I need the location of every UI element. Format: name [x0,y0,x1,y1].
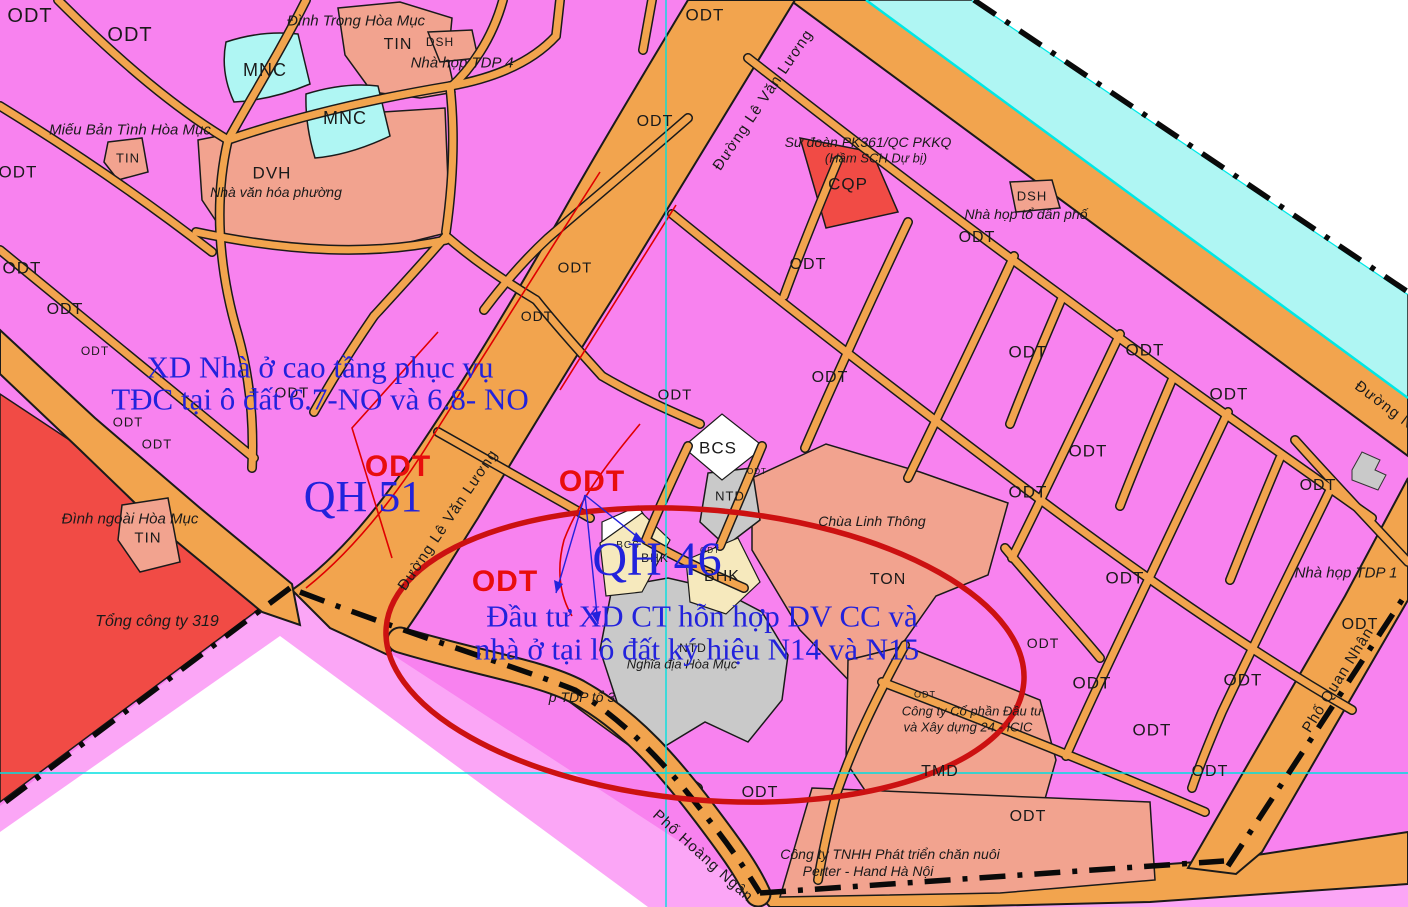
map-label: Đình ngoài Hòa Mục [62,512,199,527]
map-label: DVH [253,165,292,182]
map-label: ODT [7,6,52,26]
map-label: ODT [1224,672,1263,689]
map-label: ODT [142,438,172,451]
map-label: TIN [116,152,140,165]
map-label: NTD [715,490,745,503]
map-label: Nhà họp TDP 1 [1295,566,1398,581]
map-label: Công ty TNHH Phát triển chăn nuôi [780,847,999,861]
map-label: ODT [1300,478,1337,494]
map-label: ODT [1027,636,1060,650]
map-label: Tổng công ty 319 [95,614,219,630]
map-label: ODT [1106,570,1145,587]
map-label: ODT [1073,675,1112,692]
map-label: ODT [1126,342,1165,359]
map-label: BCS [699,440,737,457]
map-label: ODT [1009,344,1048,361]
map-label: DSH [1017,190,1047,203]
map-label: ODT [107,25,152,45]
map-label: MNC [243,61,287,79]
map-label: ODT [3,260,42,277]
map-canvas[interactable]: ODTODTODTODTODTODTODTODTODTODTODTODTODTO… [0,0,1408,907]
map-label: ODT [558,261,593,276]
map-label: CQP [828,176,868,193]
map-label: Perter - Hand Hà Nội [803,864,934,878]
map-label: Nhà họp tổ dân phố [965,207,1088,221]
annotation-label: ODT [365,452,431,482]
map-label: TON [870,572,906,588]
map-label: Công ty Cổ phần Đầu tư [902,705,1043,718]
map-label: ODT [959,230,996,246]
map-label: ODT [747,468,767,476]
map-label: TIN [384,37,413,53]
annotation-label: QH 46 [592,536,721,584]
annotation-label: XD Nhà ở cao tầng phục vụ [147,352,494,383]
map-label: DSH [426,36,454,48]
map-label: ODT [658,388,693,403]
map-label: ODT [742,785,779,801]
annotation-label: Đầu tư XD CT hỗn hợp DV CC và [486,601,918,632]
annotation-label: ODT [559,467,625,497]
map-label: ODT [1210,386,1249,403]
map-label: ODT [812,370,849,386]
map-label: (Hầm SCH Dự bị) [825,152,927,165]
map-label: ODT [790,257,827,273]
map-label: ODT [113,416,143,429]
map-label: ODT [637,114,674,130]
map-label: ODT [686,7,725,24]
map-label: TMD [921,764,959,780]
map-label: MNC [323,109,367,127]
map-label: và Xây dựng 24 - ICIC [904,721,1033,734]
map-label: Miếu Bản Tình Hòa Mục [49,123,211,138]
map-label: ODT [1069,443,1108,460]
map-label: ODT [47,302,84,318]
map-label: Sư đoàn PK361/QC PKKQ [785,135,952,149]
map-label: Chùa Linh Thông [818,514,925,528]
map-label: Nhà họp TDP 4 [411,56,514,71]
map-label: ODT [521,309,554,323]
map-label: ODT [1010,809,1047,825]
annotation-label: ODT [472,567,538,597]
map-label: ODT [0,164,37,181]
annotation-label: TĐC tại ô đất 6.7-NO và 6.8- NO [111,384,529,415]
map-label: Đình Trong Hòa Mục [287,14,425,29]
map-label: p TDP tổ 3 [549,690,615,704]
annotation-label: nhà ở tại lô đất ký hiệu N14 và N15 [475,634,919,665]
map-label: ODT [1009,484,1048,501]
map-label: ODT [81,345,109,357]
map-label: ODT [1192,764,1229,780]
map-label: ODT [1133,722,1172,739]
map-label: TIN [134,531,161,546]
map-label: ODT [914,691,936,700]
map-label: Nhà văn hóa phường [210,185,342,199]
